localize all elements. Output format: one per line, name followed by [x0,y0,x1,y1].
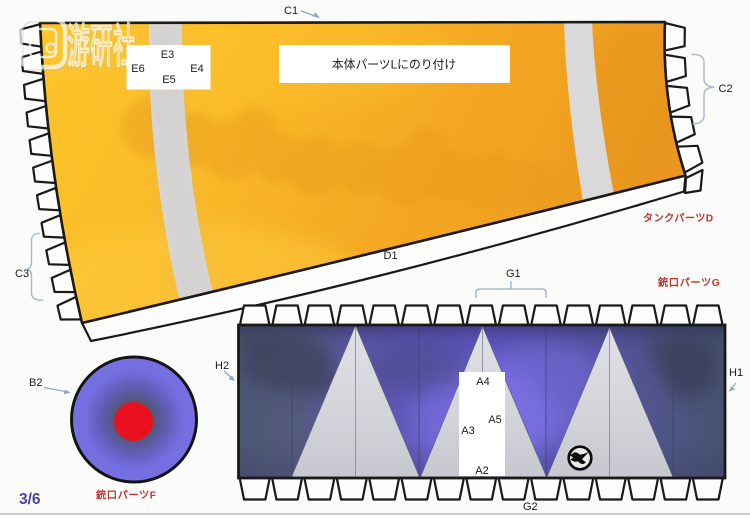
svg-text:A4: A4 [476,376,489,388]
svg-text:本体パーツLにのり付け: 本体パーツLにのり付け [332,58,456,72]
svg-text:タンクパーツD: タンクパーツD [643,213,714,225]
svg-text:H2: H2 [215,360,229,372]
svg-text:C2: C2 [719,83,733,95]
svg-text:A5: A5 [488,414,501,426]
svg-text:C1: C1 [284,5,298,17]
svg-text:D1: D1 [384,250,398,262]
svg-text:游研社: 游研社 [67,20,135,72]
svg-text:銃口パーツG: 銃口パーツG [658,276,720,289]
svg-text:G1: G1 [506,268,521,280]
svg-text:E4: E4 [190,63,203,75]
svg-text:E5: E5 [162,74,175,86]
svg-text:3/6: 3/6 [19,491,41,508]
svg-text:E3: E3 [161,49,174,61]
svg-text:E6: E6 [131,63,144,75]
svg-text:G2: G2 [523,501,538,513]
svg-text:A3: A3 [461,425,474,437]
svg-text:銃口パーツF: 銃口パーツF [96,489,157,502]
svg-text:B2: B2 [29,377,42,389]
svg-text:H1: H1 [729,367,743,379]
svg-text:A2: A2 [475,465,488,477]
svg-text:C3: C3 [15,268,29,280]
